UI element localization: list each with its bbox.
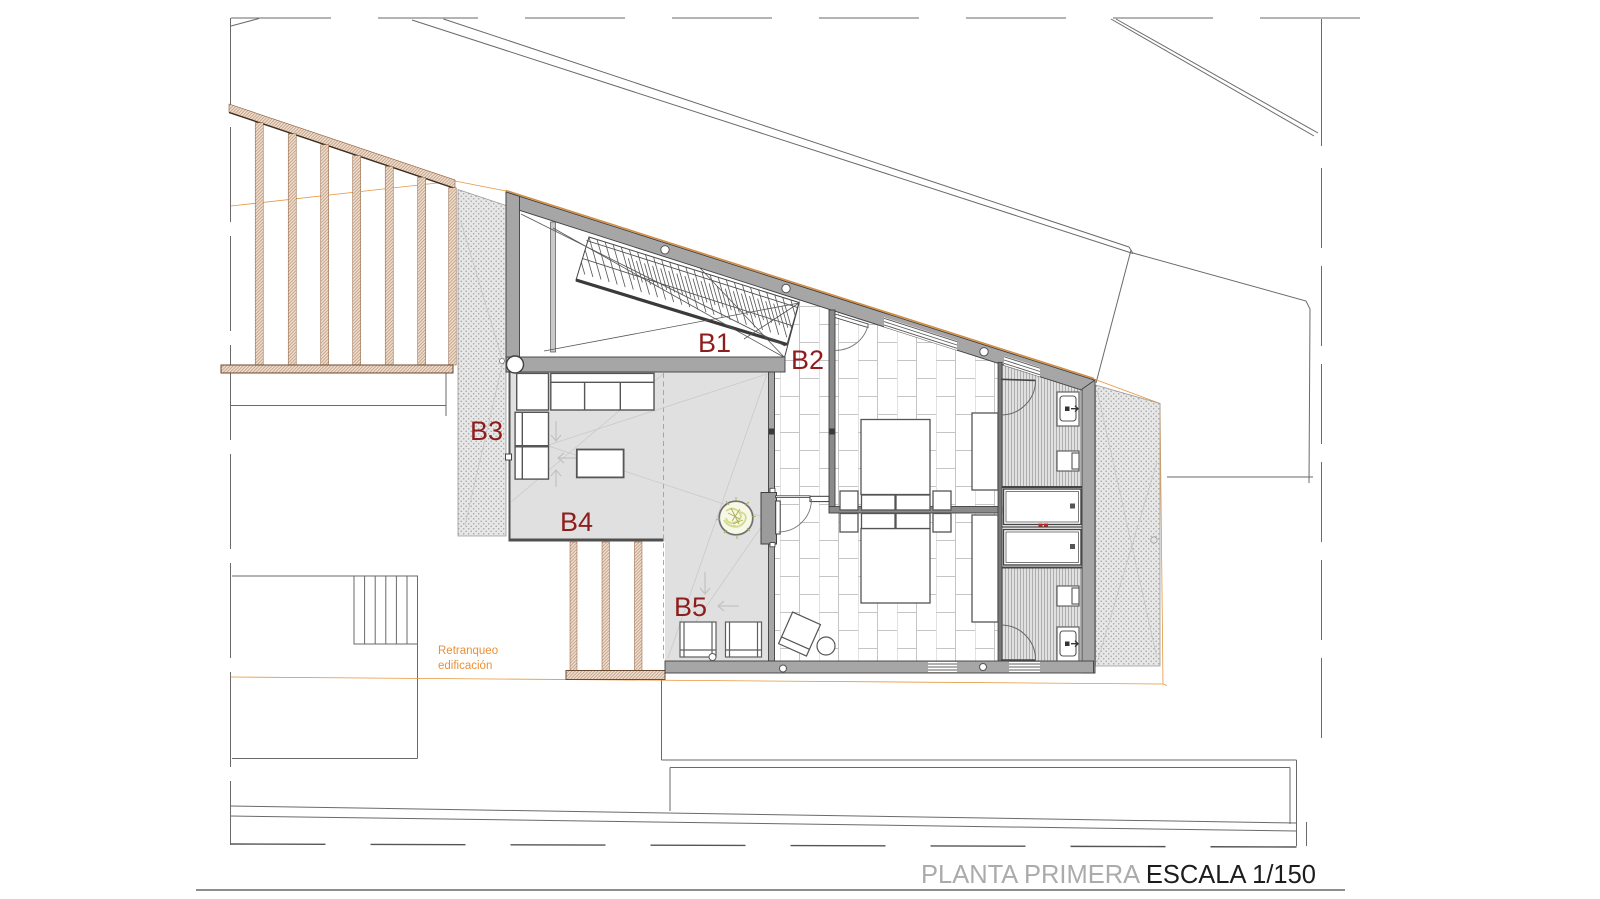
svg-text:edificación: edificación (438, 660, 492, 672)
svg-text:B5: B5 (674, 592, 707, 622)
svg-text:B4: B4 (560, 507, 593, 537)
svg-text:B3: B3 (470, 416, 503, 446)
svg-text:PLANTA PRIMERA ESCALA 1/150: PLANTA PRIMERA ESCALA 1/150 (921, 861, 1316, 889)
svg-text:Retranqueo: Retranqueo (438, 645, 498, 657)
svg-text:B1: B1 (698, 328, 731, 358)
svg-text:B2: B2 (791, 345, 824, 375)
